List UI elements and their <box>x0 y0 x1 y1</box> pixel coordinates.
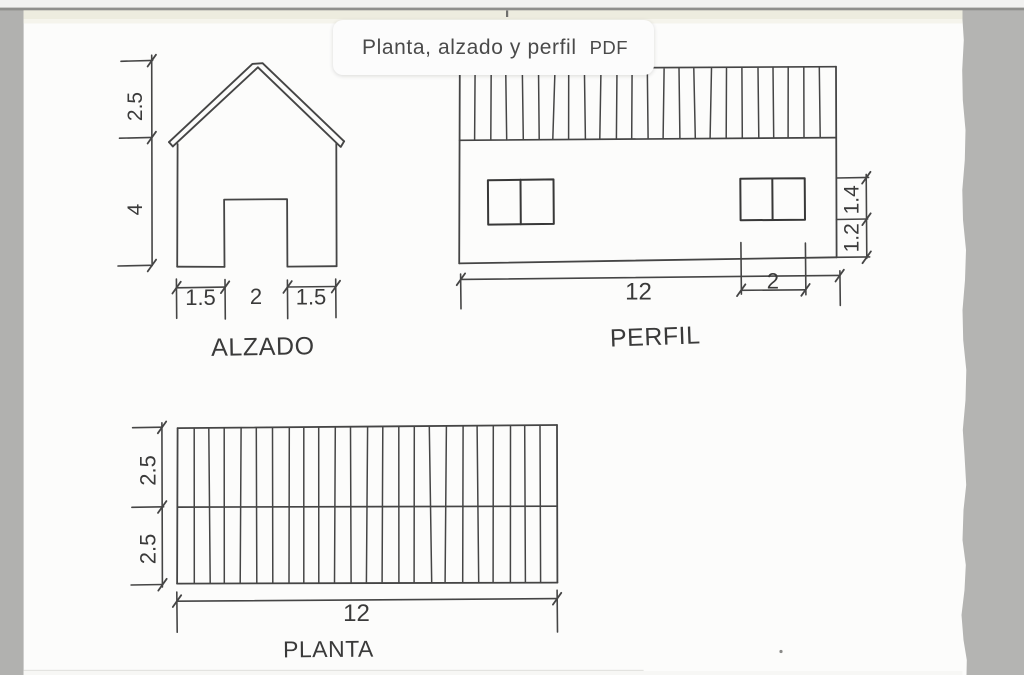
svg-text:1.5: 1.5 <box>296 284 327 309</box>
svg-text:PERFIL: PERFIL <box>609 321 700 352</box>
svg-text:12: 12 <box>625 279 652 306</box>
svg-text:1.4: 1.4 <box>840 185 863 215</box>
svg-text:2.5: 2.5 <box>135 534 160 565</box>
svg-text:2: 2 <box>250 284 262 309</box>
svg-text:2.5: 2.5 <box>124 92 147 121</box>
svg-text:2.5: 2.5 <box>136 455 161 486</box>
svg-text:ALZADO: ALZADO <box>211 332 315 362</box>
svg-text:1.2: 1.2 <box>840 223 863 252</box>
svg-text:12: 12 <box>343 600 370 627</box>
svg-text:1.5: 1.5 <box>185 285 216 310</box>
svg-text:PLANTA: PLANTA <box>283 636 374 663</box>
svg-text:4: 4 <box>124 203 147 215</box>
svg-text:2: 2 <box>767 269 779 294</box>
